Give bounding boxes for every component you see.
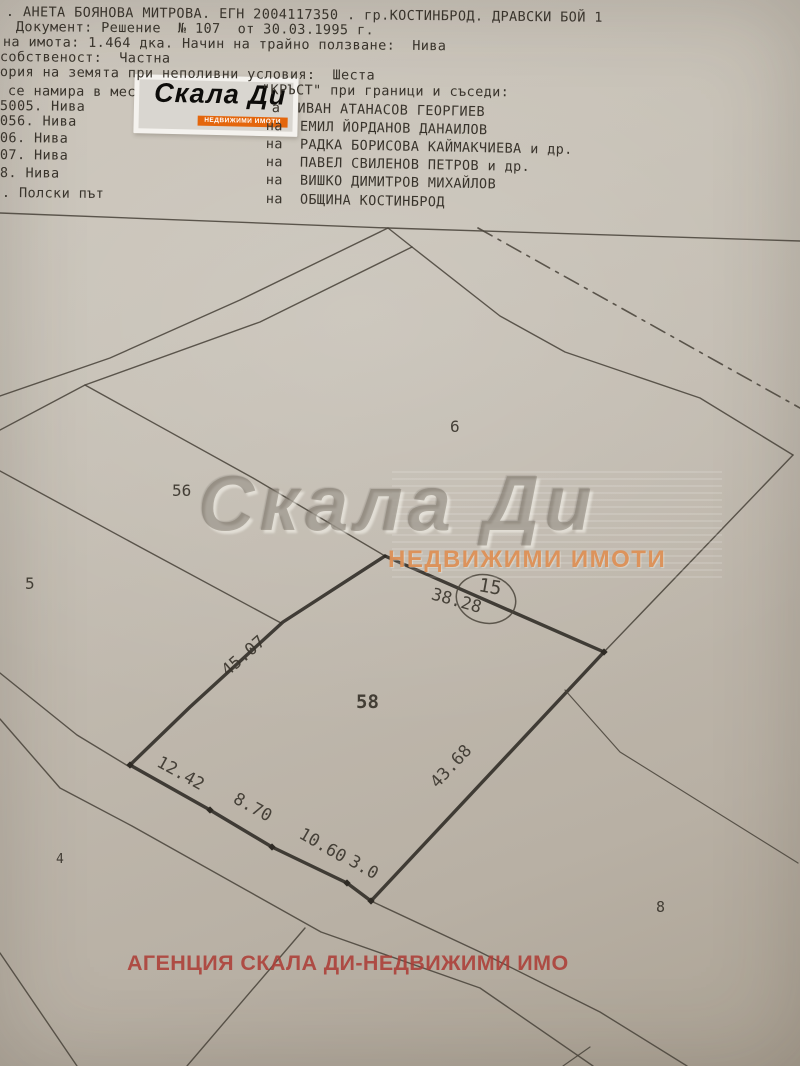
measurement-m-3-0: 3.0 xyxy=(345,851,382,884)
parcel-label-parcel-56: 56 xyxy=(172,481,191,500)
map-line-boundary-8-north xyxy=(565,690,798,863)
parcel-label-parcel-5: 5 xyxy=(25,574,35,593)
map-line-road2-upper-west xyxy=(0,673,128,766)
map-line-road-upper-edge xyxy=(0,228,388,396)
measurement-m-43-68: 43.68 xyxy=(427,741,477,792)
measurement-m-45-07: 45.07 xyxy=(218,632,270,681)
watermark-brand: Скала Ди xyxy=(198,458,658,549)
cadastral-sketch-photo: 156565588445.0738.2843.6812.428.7010.603… xyxy=(0,0,800,1066)
neighbor-owner: на ОБЩИНА КОСТИНБРОД xyxy=(266,191,445,210)
location-line-right: "КРЪСТ" при граници и съседи: xyxy=(262,82,509,100)
map-line-fork-join xyxy=(388,228,412,247)
measurement-m-12-42: 12.42 xyxy=(153,752,207,794)
parcel-label-parcel-4: 4 xyxy=(56,852,64,867)
map-line-parcel-58-bottom xyxy=(130,765,371,901)
map-line-parcel-58-left xyxy=(130,556,385,765)
map-line-road-lower-edge xyxy=(0,247,412,430)
map-line-boundary-south xyxy=(187,928,305,1066)
map-line-boundary-south-2 xyxy=(563,1047,590,1066)
watermark-tagline: НЕДВИЖИМИ ИМОТИ xyxy=(388,546,666,574)
map-line-parcel-58-right xyxy=(371,652,604,901)
agency-footer-watermark: АГЕНЦИЯ СКАЛА ДИ-НЕДВИЖИМИ ИМО xyxy=(127,951,569,976)
map-line-dash-dot-boundary xyxy=(478,228,800,408)
parcel-label-parcel-8: 8 xyxy=(656,898,665,916)
neighbor-num: 07. Нива xyxy=(0,147,68,164)
parcel-label-parcel-58: 58 xyxy=(356,691,379,713)
map-line-boundary-sw xyxy=(0,953,77,1066)
parcel-label-parcel-6: 6 xyxy=(450,417,460,436)
neighbor-num: 06. Нива xyxy=(0,130,68,147)
map-line-boundary-6-east xyxy=(412,247,793,455)
neighbor-num: . Полски път xyxy=(2,185,104,202)
map-line-road2-upper-east xyxy=(371,901,687,1066)
point-circle-label: 15 xyxy=(477,574,503,600)
measurement-m-8-70: 8.70 xyxy=(230,789,276,826)
measurement-m-38-28: 38.28 xyxy=(429,585,484,618)
map-line-road2-lower xyxy=(0,719,593,1066)
neighbor-num: 8. Нива xyxy=(0,165,60,182)
neighbor-num: 056. Нива xyxy=(0,113,77,130)
